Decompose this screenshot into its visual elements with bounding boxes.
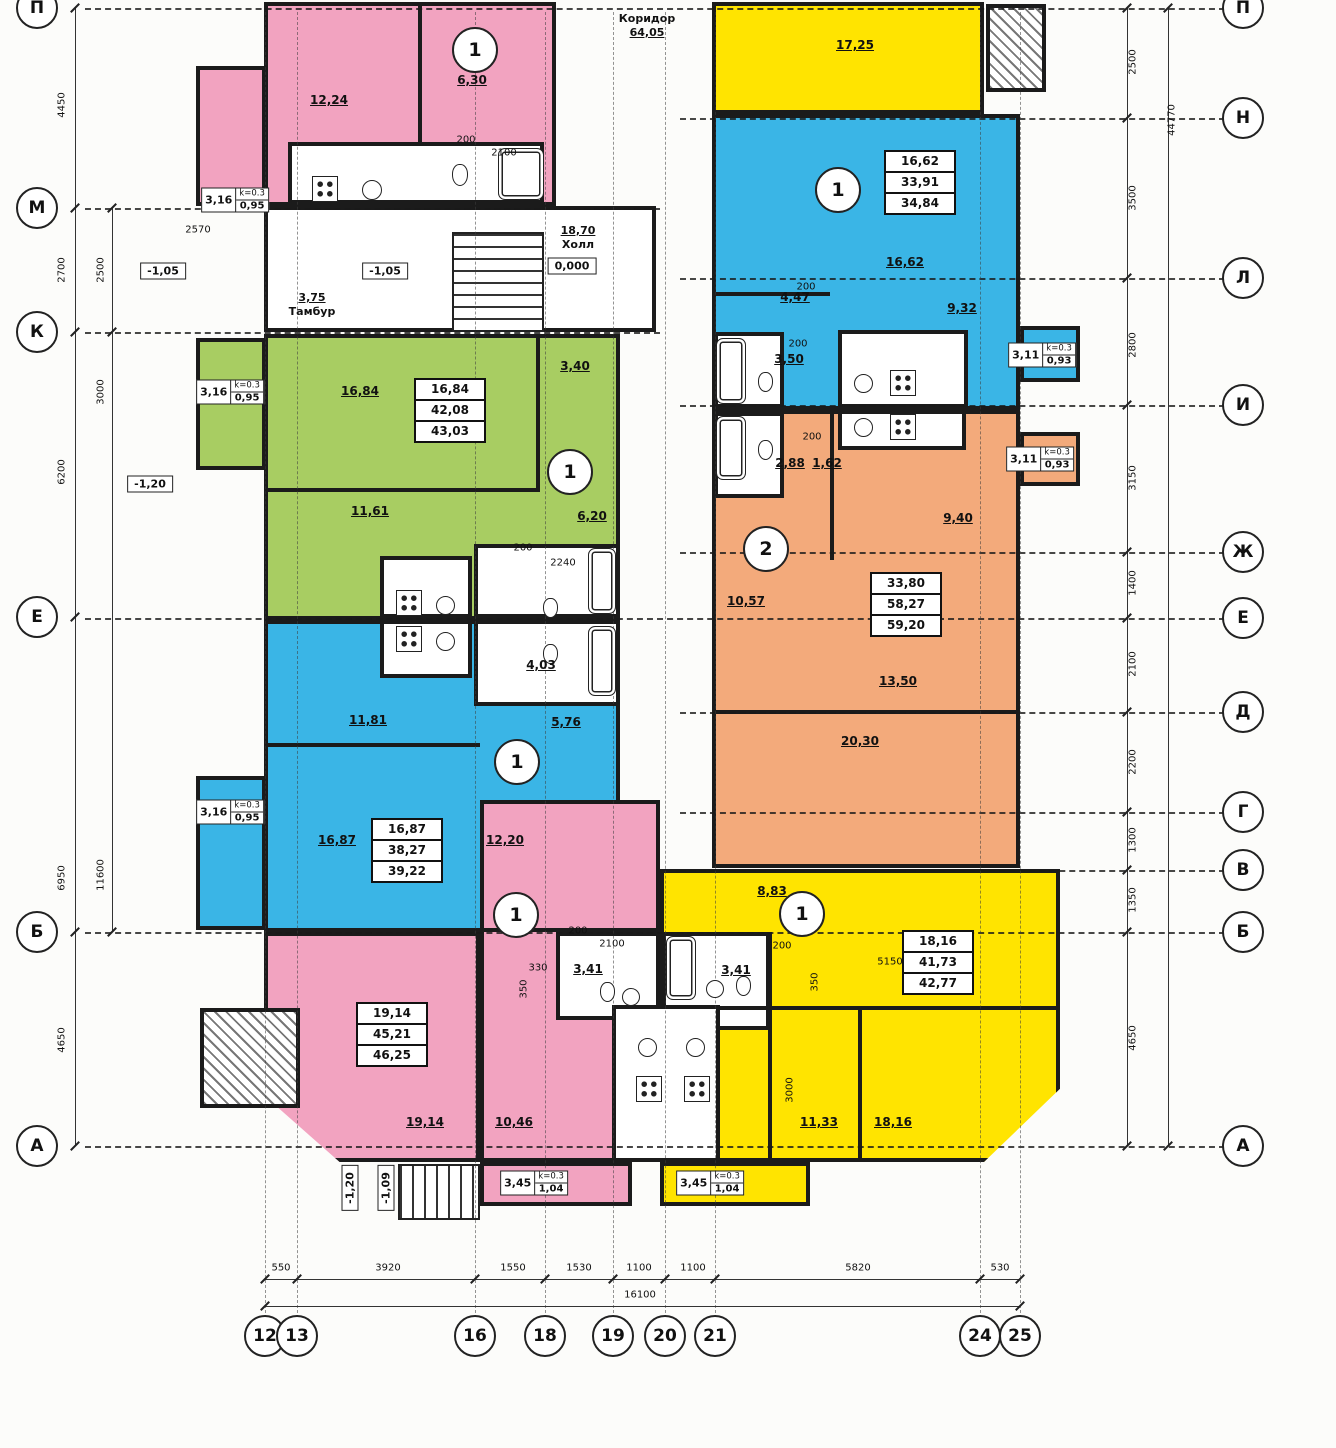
level-mark: -1,20	[342, 1165, 359, 1211]
reduced-area: 0,93	[1041, 459, 1073, 471]
sink-icon	[686, 1038, 705, 1057]
axis-line	[85, 932, 1225, 934]
axis-bubble-А: А	[1222, 1125, 1264, 1167]
apartment-number-badge: 1	[815, 167, 861, 213]
grid-line	[715, 12, 716, 1318]
axis-bubble-К: К	[16, 311, 58, 353]
stove-icon	[636, 1076, 662, 1102]
axis-bubble-М: М	[16, 187, 58, 229]
axis-line	[85, 208, 660, 210]
reduced-area: 0,93	[1043, 355, 1075, 367]
apartment-number-badge: 1	[494, 739, 540, 785]
level-mark: -1,20	[127, 476, 173, 493]
area-table-value: 33,91	[886, 173, 954, 194]
grid-line	[1020, 12, 1021, 1318]
axis-line	[680, 712, 1225, 714]
wc-icon	[600, 982, 615, 1002]
axis-bubble-20: 20	[644, 1315, 686, 1357]
dimension-label: 44770	[1167, 104, 1178, 136]
k-factor: k=0.3	[236, 189, 268, 200]
area-table-value: 16,87	[373, 820, 441, 841]
area-table-value: 58,27	[872, 595, 940, 616]
axis-line	[680, 812, 1225, 814]
dimension-label: 5150	[877, 957, 902, 968]
axis-line	[680, 118, 1225, 120]
balcony-area: 3,16	[197, 801, 231, 824]
tub-icon	[588, 626, 616, 696]
wall-segment	[264, 488, 540, 492]
sink-icon	[638, 1038, 657, 1057]
reduced-area: 0,95	[236, 200, 268, 212]
room-area-label: 12,20	[486, 833, 524, 847]
wc-icon	[452, 164, 468, 186]
dimension-label: 350	[519, 979, 530, 998]
k-factor: k=0.3	[1041, 448, 1073, 459]
axis-line	[85, 1146, 1225, 1148]
balcony-area-label: 3,16k=0.30,95	[196, 800, 264, 825]
stove-icon	[890, 414, 916, 440]
wc-icon	[758, 440, 773, 460]
dimension-label: 1530	[566, 1263, 591, 1274]
balcony-coefficient: k=0.31,04	[711, 1172, 743, 1195]
area-table-value: 34,84	[886, 194, 954, 213]
apt-green-kitchen	[380, 556, 472, 618]
apartment-area-table: 19,1445,2146,25	[356, 1002, 428, 1067]
balcony-area: 3,16	[202, 189, 236, 212]
room-area-label: 9,40	[943, 511, 973, 525]
area-table-value: 42,77	[904, 974, 972, 993]
room-area-label: 3,50	[774, 352, 804, 366]
dimension-label: 200	[772, 941, 791, 952]
room-area-label: 6,20	[577, 509, 607, 523]
wc-icon	[758, 372, 773, 392]
room-area-label: 11,81	[349, 713, 387, 727]
axis-bubble-Ж: Ж	[1222, 531, 1264, 573]
dimension-label: 2800	[1128, 332, 1139, 357]
dimension-label: 2570	[185, 225, 210, 236]
k-factor: k=0.3	[711, 1172, 743, 1183]
reduced-area: 0,95	[231, 812, 263, 824]
room-area-label: 9,32	[947, 301, 977, 315]
balcony-coefficient: k=0.30,95	[231, 801, 263, 824]
dimension-label: 200	[788, 339, 807, 350]
reduced-area: 1,04	[535, 1183, 567, 1195]
tub-icon	[716, 416, 746, 480]
area-table-value: 43,03	[416, 422, 484, 441]
room-area-label: 3,40	[560, 359, 590, 373]
axis-bubble-Л: Л	[1222, 257, 1264, 299]
apartment-number-badge: 2	[743, 526, 789, 572]
staircase-bottom	[398, 1164, 480, 1220]
apartment-area-table: 16,6233,9134,84	[884, 150, 956, 215]
room-area-label: 17,25	[836, 38, 874, 52]
balcony-area-label: 3,11k=0.30,93	[1006, 447, 1074, 472]
axis-bubble-Б: Б	[16, 911, 58, 953]
sink-icon	[706, 980, 724, 998]
sink-icon	[854, 418, 873, 437]
dimension-label: 330	[528, 963, 547, 974]
k-factor: k=0.3	[535, 1172, 567, 1183]
dimension-label: 2100	[599, 939, 624, 950]
area-table-value: 19,14	[358, 1004, 426, 1025]
apartment-area-table: 18,1641,7342,77	[902, 930, 974, 995]
dimension-chain-line	[265, 1306, 1020, 1307]
room-area-label: 16,62	[886, 255, 924, 269]
wall-segment	[768, 932, 772, 1162]
note-line: Холл	[561, 238, 596, 252]
wall-segment	[478, 932, 482, 1162]
axis-line	[680, 870, 1225, 872]
stove-icon	[890, 370, 916, 396]
dimension-label: 2500	[1128, 49, 1139, 74]
dimension-label: 2240	[550, 558, 575, 569]
text-note: 18,70Холл	[561, 224, 596, 252]
tub-icon	[716, 338, 746, 404]
dimension-label: 2100	[491, 148, 516, 159]
reduced-area: 1,04	[711, 1183, 743, 1195]
balcony-area-label: 3,16k=0.30,95	[201, 188, 269, 213]
dimension-label: 3500	[1128, 185, 1139, 210]
sink-icon	[362, 180, 382, 200]
wall-segment	[830, 410, 834, 560]
apartment-number-badge: 1	[452, 27, 498, 73]
text-note: 3,75Тамбур	[289, 291, 336, 319]
room-area-label: 18,16	[874, 1115, 912, 1129]
wall-segment	[712, 292, 830, 296]
axis-bubble-Д: Д	[1222, 691, 1264, 733]
dimension-label: 1400	[1128, 570, 1139, 595]
room-area-label: 11,61	[351, 504, 389, 518]
k-factor: k=0.3	[1043, 344, 1075, 355]
dimension-label: 550	[271, 1263, 290, 1274]
axis-bubble-Е: Е	[1222, 597, 1264, 639]
apt-blue-right-kitchen	[838, 330, 968, 408]
balcony-coefficient: k=0.30,93	[1043, 344, 1075, 367]
area-table-value: 16,62	[886, 152, 954, 173]
area-table-value: 41,73	[904, 953, 972, 974]
dimension-label: 3000	[785, 1077, 796, 1102]
room-area-label: 13,50	[879, 674, 917, 688]
apartment-area-table: 16,8442,0843,03	[414, 378, 486, 443]
balcony-area: 3,16	[197, 381, 231, 404]
text-note: Коридор64,05	[619, 12, 675, 40]
axis-line	[85, 8, 1225, 10]
area-table-value: 45,21	[358, 1025, 426, 1046]
dimension-label: 3920	[375, 1263, 400, 1274]
axis-line	[680, 405, 1225, 407]
apartment-number-badge: 1	[547, 449, 593, 495]
apartment-number-badge: 1	[493, 892, 539, 938]
grid-line	[980, 12, 981, 1318]
level-mark: 0,000	[548, 258, 597, 275]
level-mark: -1,09	[378, 1165, 395, 1211]
room-area-label: 12,24	[310, 93, 348, 107]
grid-line	[297, 12, 298, 1318]
stove-icon	[396, 590, 422, 616]
note-line: 64,05	[619, 26, 675, 40]
note-line: Коридор	[619, 12, 675, 26]
area-table-value: 38,27	[373, 841, 441, 862]
area-table-value: 33,80	[872, 574, 940, 595]
room-area-label: 11,33	[800, 1115, 838, 1129]
sink-icon	[436, 596, 455, 615]
apt-yellow-top-room	[712, 2, 984, 114]
sink-icon	[622, 988, 640, 1006]
floor-plan: ПМКЕБАПНЛИЖЕДГВБА12131618192021242511121…	[0, 0, 1336, 1448]
room-area-label: 2,88	[775, 456, 805, 470]
dimension-label: 350	[810, 972, 821, 991]
balcony-coefficient: k=0.30,95	[236, 189, 268, 212]
room-area-label: 3,41	[573, 962, 603, 976]
axis-bubble-В: В	[1222, 849, 1264, 891]
stove-icon	[684, 1076, 710, 1102]
sink-icon	[854, 374, 873, 393]
note-line: Тамбур	[289, 305, 336, 319]
dimension-label: 2700	[57, 257, 68, 282]
dimension-label: 4650	[1128, 1025, 1139, 1050]
axis-bubble-19: 19	[592, 1315, 634, 1357]
vent-shaft	[200, 1008, 300, 1108]
wall-segment	[536, 334, 540, 492]
dimension-label: 1300	[1128, 827, 1139, 852]
dimension-label: 11600	[96, 859, 107, 891]
axis-line	[85, 332, 660, 334]
level-mark: -1,05	[362, 263, 408, 280]
area-table-value: 18,16	[904, 932, 972, 953]
dimension-label: 1550	[500, 1263, 525, 1274]
room-area-label: 10,46	[495, 1115, 533, 1129]
room-area-label: 20,30	[841, 734, 879, 748]
balcony-coefficient: k=0.30,93	[1041, 448, 1073, 471]
room-area-label: 10,57	[727, 594, 765, 608]
stove-icon	[396, 626, 422, 652]
wc-icon	[736, 976, 751, 996]
dimension-label: 5820	[845, 1263, 870, 1274]
balcony-coefficient: k=0.31,04	[535, 1172, 567, 1195]
area-table-value: 42,08	[416, 401, 484, 422]
balcony-area-label: 3,16k=0.30,95	[196, 380, 264, 405]
dimension-label: 1350	[1128, 887, 1139, 912]
dimension-label: 1100	[626, 1263, 651, 1274]
dimension-label: 200	[802, 432, 821, 443]
area-table-value: 59,20	[872, 616, 940, 635]
balcony-area-label: 3,45k=0.31,04	[676, 1171, 744, 1196]
dimension-label: 6200	[57, 459, 68, 484]
room-area-label: 3,41	[721, 963, 751, 977]
grid-line	[475, 12, 476, 1318]
dimension-label: 200	[513, 543, 532, 554]
room-area-label: 19,14	[406, 1115, 444, 1129]
balcony-area: 3,11	[1009, 344, 1043, 367]
axis-bubble-Г: Г	[1222, 791, 1264, 833]
axis-bubble-24: 24	[959, 1315, 1001, 1357]
axis-bubble-А: А	[16, 1125, 58, 1167]
staircase-top	[452, 232, 544, 332]
area-table-value: 16,84	[416, 380, 484, 401]
dimension-label: 200	[456, 135, 475, 146]
elevator-shaft	[986, 4, 1046, 92]
dimension-label: 16100	[624, 1290, 656, 1301]
balcony-area-label: 3,11k=0.30,93	[1008, 343, 1076, 368]
axis-bubble-Е: Е	[16, 596, 58, 638]
room-area-label: 5,76	[551, 715, 581, 729]
dimension-label: 200	[568, 926, 587, 937]
room-area-label: 4,03	[526, 658, 556, 672]
area-table-value: 39,22	[373, 862, 441, 881]
grid-line	[665, 12, 666, 1318]
level-mark: -1,05	[140, 263, 186, 280]
k-factor: k=0.3	[231, 801, 263, 812]
wall-segment	[418, 2, 422, 142]
room-area-label: 6,30	[457, 73, 487, 87]
apt-pink-top-balcony	[196, 66, 266, 206]
balcony-coefficient: k=0.30,95	[231, 381, 263, 404]
axis-bubble-П: П	[16, 0, 58, 29]
tub-icon	[666, 936, 696, 1000]
dimension-label: 1100	[680, 1263, 705, 1274]
axis-bubble-П: П	[1222, 0, 1264, 29]
wall-segment	[858, 1008, 862, 1162]
dimension-label: 3150	[1128, 465, 1139, 490]
axis-bubble-13: 13	[276, 1315, 318, 1357]
axis-bubble-Б: Б	[1222, 911, 1264, 953]
apt-blue-left-kitchen	[380, 620, 472, 678]
stove-icon	[312, 176, 338, 202]
note-line: 3,75	[289, 291, 336, 305]
area-table-value: 46,25	[358, 1046, 426, 1065]
dimension-label: 530	[990, 1263, 1009, 1274]
room-area-label: 16,84	[341, 384, 379, 398]
dimension-chain-line	[1168, 8, 1169, 1146]
room-area-label: 16,87	[318, 833, 356, 847]
room-area-label: 1,62	[812, 456, 842, 470]
axis-bubble-21: 21	[694, 1315, 736, 1357]
dimension-label: 2100	[1128, 651, 1139, 676]
axis-bubble-25: 25	[999, 1315, 1041, 1357]
balcony-area-label: 3,45k=0.31,04	[500, 1171, 568, 1196]
balcony-area: 3,45	[677, 1172, 711, 1195]
sink-icon	[436, 632, 455, 651]
dimension-label: 3000	[96, 379, 107, 404]
apartment-area-table: 33,8058,2759,20	[870, 572, 942, 637]
dimension-chain-line	[75, 8, 76, 1146]
dimension-label: 200	[796, 282, 815, 293]
dimension-label: 4450	[57, 92, 68, 117]
axis-bubble-16: 16	[454, 1315, 496, 1357]
axis-line	[680, 278, 1225, 280]
dimension-label: 6950	[57, 865, 68, 890]
k-factor: k=0.3	[231, 381, 263, 392]
note-line: 18,70	[561, 224, 596, 238]
apartment-area-table: 16,8738,2739,22	[371, 818, 443, 883]
dimension-label: 4650	[57, 1027, 68, 1052]
balcony-area: 3,45	[501, 1172, 535, 1195]
balcony-area: 3,11	[1007, 448, 1041, 471]
axis-bubble-Н: Н	[1222, 97, 1264, 139]
wc-icon	[543, 598, 558, 618]
dimension-chain-line	[265, 1279, 1020, 1280]
dimension-chain-line	[112, 208, 113, 932]
axis-bubble-И: И	[1222, 384, 1264, 426]
tub-icon	[588, 548, 616, 614]
axis-bubble-18: 18	[524, 1315, 566, 1357]
dimension-label: 2200	[1128, 749, 1139, 774]
axis-line	[85, 618, 1225, 620]
dimension-label: 2500	[96, 257, 107, 282]
room-area-label: 8,83	[757, 884, 787, 898]
reduced-area: 0,95	[231, 392, 263, 404]
